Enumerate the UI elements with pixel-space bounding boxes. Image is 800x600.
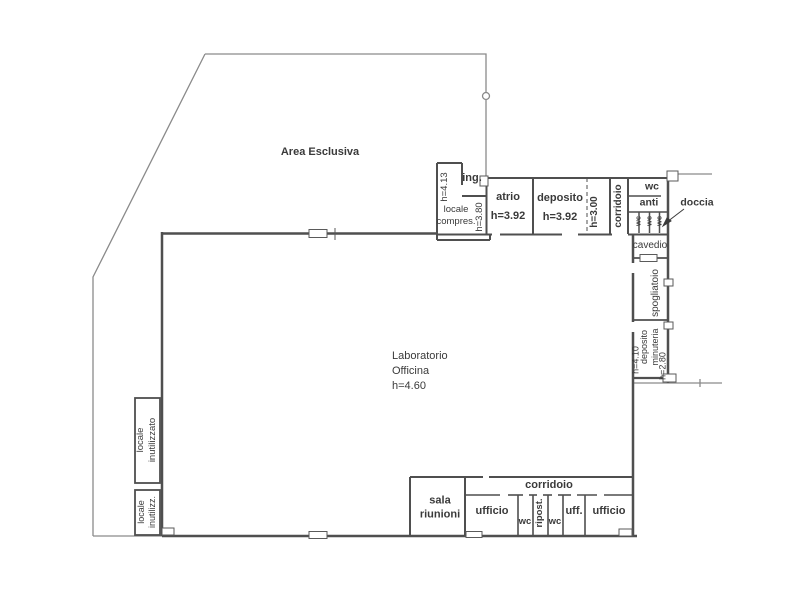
h413-label: h=4.13: [439, 172, 451, 201]
outer-boundary: [93, 54, 722, 536]
ingresso-label: ing.: [462, 172, 482, 186]
deposito-label: deposito h=3.92: [537, 189, 583, 228]
wc-stall-1-label: wc: [633, 216, 642, 226]
locale-inutilizzato-label: locale inutilizzato: [135, 418, 159, 462]
floor-plan: Area Esclusiva ing. h=4.13 locale compre…: [0, 0, 800, 600]
doccia-label: doccia: [680, 196, 713, 209]
corridoio-nord-label: corridoio: [613, 184, 626, 227]
h280-label: h=2.80: [657, 352, 668, 380]
spogliatoio-label: spogliatoio: [650, 269, 663, 317]
sala-riunioni-label: sala riunioni: [420, 494, 460, 522]
floorplan-linework: [0, 0, 800, 600]
laboratorio-label: Laboratorio Officina h=4.60: [392, 349, 448, 394]
locale-compressore-label: locale compres.: [436, 204, 475, 228]
h300-label: h=3.00: [589, 196, 602, 227]
ripostiglio-label: ripost.: [534, 498, 546, 527]
uff-label: uff.: [565, 505, 582, 519]
wc-stall-2-label: wc: [644, 216, 653, 226]
wc-sud-2-label: wc: [549, 516, 562, 528]
atrio-label: atrio h=3.92: [491, 188, 526, 227]
cavedio-label: cavedio: [633, 240, 667, 253]
wc-sud-1-label: wc: [519, 516, 532, 528]
ufficio-2-label: ufficio: [593, 505, 626, 519]
locale-inutilizz-label: locale inutilizz.: [136, 496, 159, 528]
h410-label: h=4.10: [630, 346, 641, 374]
anti-label: anti: [640, 196, 659, 209]
wc-nord-label: wc: [645, 180, 659, 193]
area-esclusiva-label: Area Esclusiva: [281, 146, 359, 160]
h380-label: h=3.80: [474, 202, 486, 231]
corridoio-sud-label: corridoio: [525, 479, 573, 493]
wc-stall-3-label: wc: [654, 216, 663, 226]
ufficio-1-label: ufficio: [476, 505, 509, 519]
